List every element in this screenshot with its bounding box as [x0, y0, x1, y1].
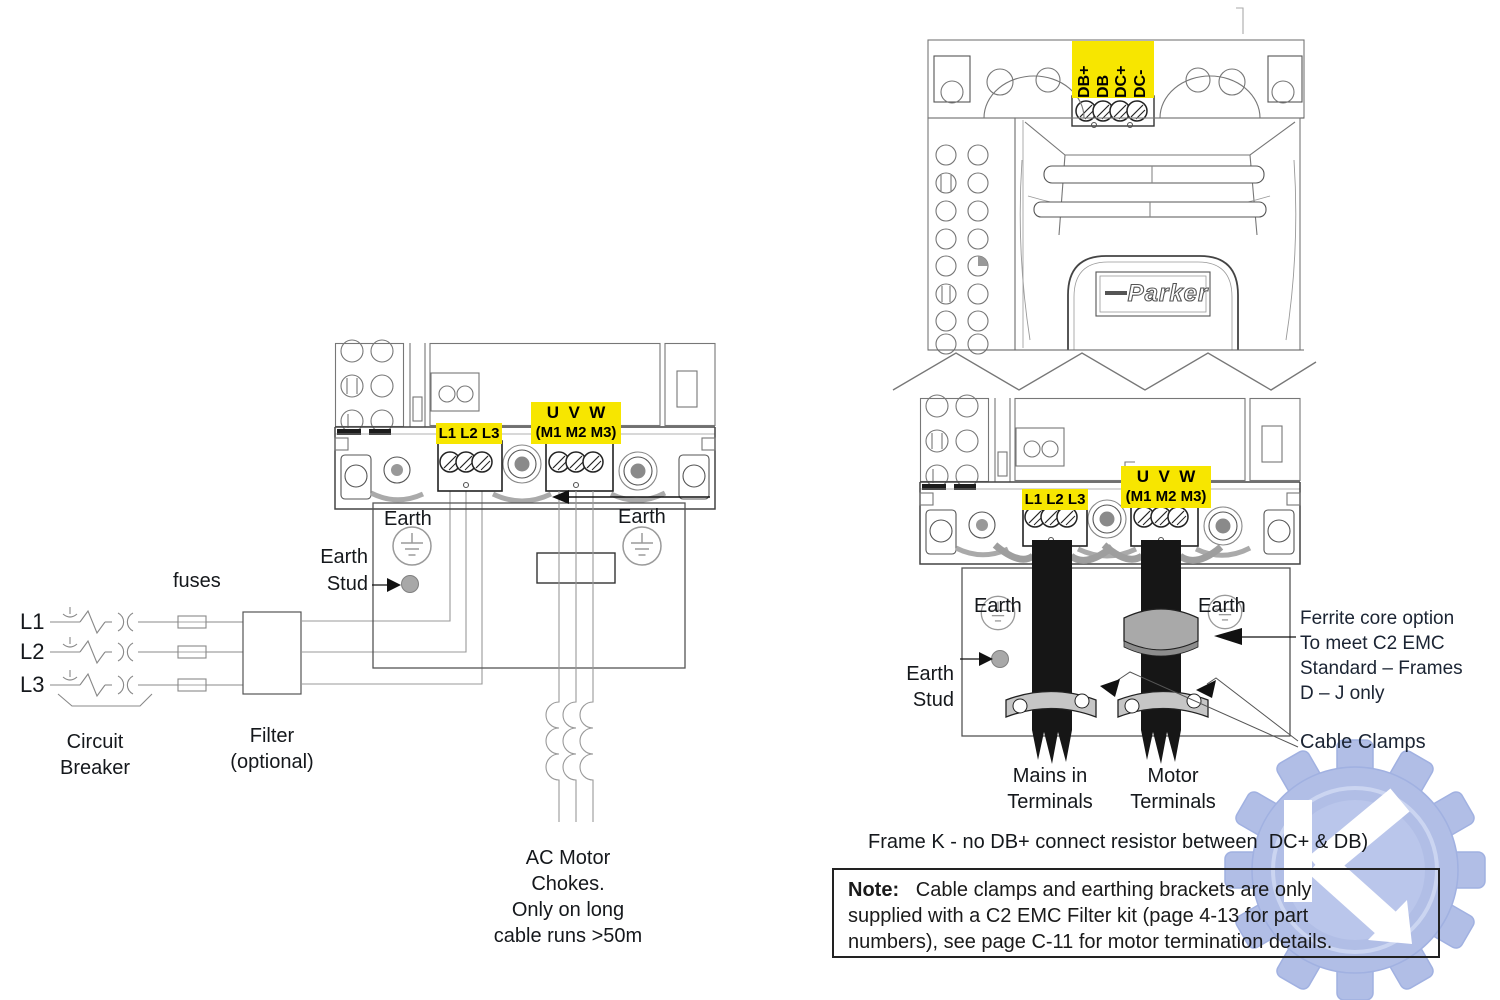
filter-box: [243, 612, 301, 694]
wiring-diagram-page: Parker: [0, 0, 1500, 1000]
motor-terminal-label-top: U V W: [531, 403, 621, 423]
cable-clamps-label: Cable Clamps: [1300, 729, 1426, 755]
drive-front-annotations: [372, 490, 710, 822]
earth-symbol: [393, 527, 431, 565]
motor-terminal-label: U V W (M1 M2 M3): [531, 402, 621, 444]
earth-stud-dot: [992, 651, 1009, 668]
mains-terminal-label: L1 L2 L3: [436, 423, 502, 444]
motor-terminals-label: Motor Terminals: [1118, 763, 1228, 815]
filter-label: Filter (optional): [208, 723, 336, 775]
circuit-breaker-pole-1: [50, 607, 178, 633]
earth-label: Earth: [1198, 593, 1246, 619]
earth-label: Earth: [384, 506, 432, 532]
earth-symbol: [623, 527, 661, 565]
frame-k-note: Frame K - no DB+ connect resistor betwee…: [868, 829, 1368, 855]
dc-terminal-db: DB: [1096, 41, 1112, 98]
drive-front-view: [335, 340, 715, 509]
earth-stud-pointer-2: [960, 652, 993, 666]
earth-stud-label-2: Earth Stud: [890, 661, 954, 713]
note-box: Note: Cable clamps and earthing brackets…: [832, 868, 1440, 958]
earth-stud-dot: [402, 576, 419, 593]
ferrite-core-note: Ferrite core option To meet C2 EMC Stand…: [1300, 606, 1463, 706]
parker-logo-text: Parker: [1128, 280, 1209, 307]
mains-cable: [1032, 540, 1072, 764]
motor-terminal-label-2-top: U V W: [1121, 467, 1211, 487]
fuses-label: fuses: [173, 568, 221, 594]
fuse-1: [178, 616, 243, 628]
earth-stud-label: Earth Stud: [296, 544, 368, 598]
ferrite-leader-arrow: [1214, 628, 1296, 645]
note-line-1-text: Cable clamps and earthing brackets are o…: [899, 879, 1311, 901]
motor-terminal-label-bottom: (M1 M2 M3): [531, 423, 621, 442]
dc-terminal-dc-minus: DC-: [1133, 41, 1149, 98]
phase-label-l2: L2: [20, 639, 44, 665]
earth-label: Earth: [974, 593, 1022, 619]
dc-terminal-label: DB+ DB DC+ DC-: [1072, 41, 1154, 98]
earth-label: Earth: [618, 504, 666, 530]
phase-label-l1: L1: [20, 609, 44, 635]
drive-front-view-2: [920, 395, 1300, 564]
circuit-breaker-label: Circuit Breaker: [35, 729, 155, 781]
motor-terminal-label-2-bottom: (M1 M2 M3): [1121, 487, 1211, 506]
earth-stud-pointer: [372, 578, 401, 592]
dc-terminal-dc-plus: DC+: [1114, 41, 1130, 98]
phase-label-l3: L3: [20, 672, 44, 698]
note-label: Note:: [848, 879, 899, 901]
drive2-annotations: [960, 540, 1298, 764]
fuse-3: [178, 679, 243, 691]
mains-terminal-label-2: L1 L2 L3: [1022, 489, 1088, 510]
dc-terminal-db-plus: DB+: [1077, 41, 1093, 98]
fuse-2: [178, 646, 243, 658]
note-line-3: numbers), see page C-11 for motor termin…: [848, 929, 1438, 955]
note-line-1: Note: Cable clamps and earthing brackets…: [848, 877, 1438, 903]
ferrite-core: [1124, 609, 1198, 656]
circuit-breaker-pole-3: [50, 670, 178, 696]
note-line-2: supplied with a C2 EMC Filter kit (page …: [848, 903, 1438, 929]
motor-wires-with-chokes: [546, 491, 593, 822]
breaker-linkage: [58, 694, 152, 706]
motor-terminal-label-2: U V W (M1 M2 M3): [1121, 466, 1211, 508]
ac-motor-chokes-note: AC Motor Chokes. Only on long cable runs…: [478, 845, 658, 949]
circuit-breaker-pole-2: [50, 637, 178, 663]
break-line-zigzag: [893, 353, 1316, 390]
vent-panel: [928, 118, 1015, 350]
mains-in-terminals-label: Mains in Terminals: [995, 763, 1105, 815]
